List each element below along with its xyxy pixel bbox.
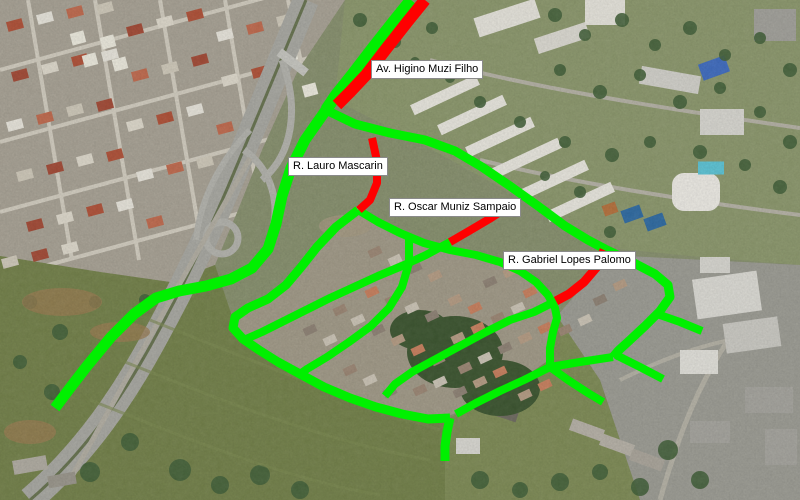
route-south-stub <box>445 418 450 461</box>
satellite-imagery <box>0 0 800 500</box>
photo-grain-light <box>0 0 800 500</box>
aerial-map-view: Av. Higino Muzi FilhoR. Lauro MascarinR.… <box>0 0 800 500</box>
